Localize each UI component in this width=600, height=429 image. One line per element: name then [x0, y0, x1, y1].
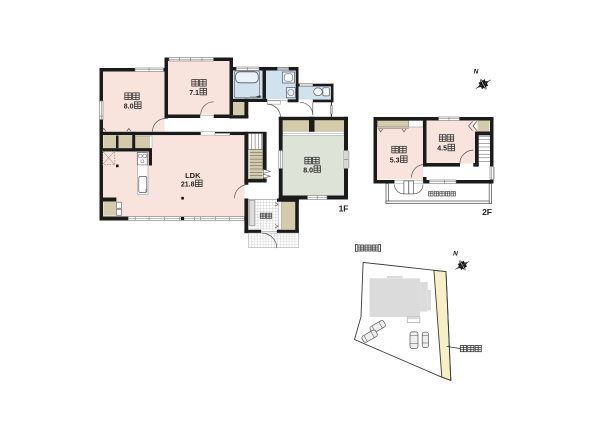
svg-text:4.5: 4.5 — [437, 146, 447, 153]
svg-text:LDK: LDK — [185, 171, 201, 180]
svg-text:7.1: 7.1 — [189, 90, 199, 97]
svg-text:8.0: 8.0 — [124, 104, 134, 111]
svg-text:8.0: 8.0 — [303, 167, 313, 174]
svg-text:N: N — [474, 69, 479, 76]
svg-text:5.3: 5.3 — [390, 157, 400, 164]
svg-text:1F: 1F — [339, 204, 349, 214]
svg-text:N: N — [453, 251, 458, 258]
svg-text:21.8: 21.8 — [181, 182, 195, 189]
svg-text:2F: 2F — [482, 207, 492, 217]
